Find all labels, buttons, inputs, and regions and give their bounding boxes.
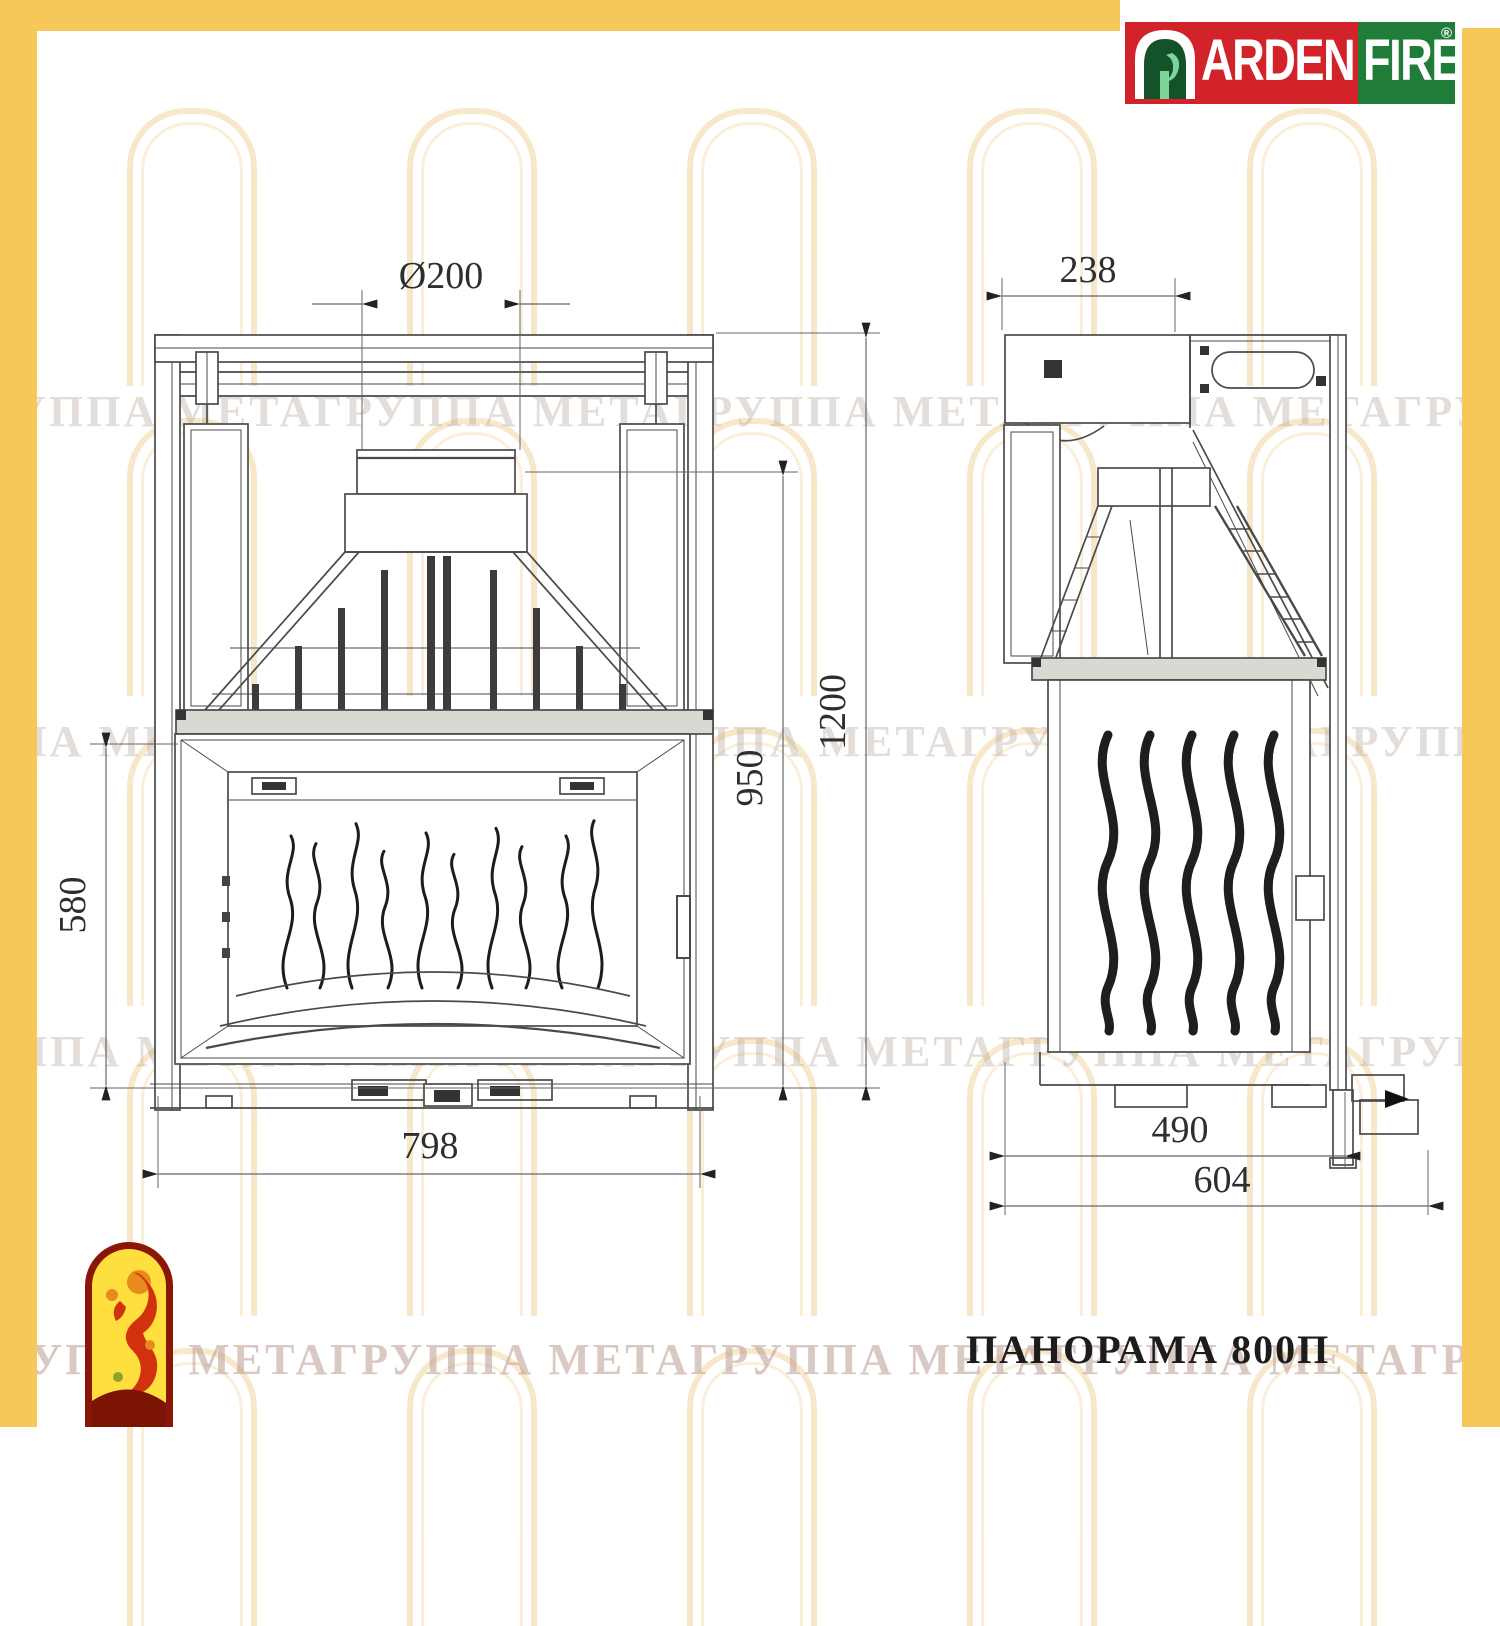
side-base	[1040, 1052, 1326, 1107]
dim-top-depth: 238	[1060, 249, 1117, 291]
brand-word-arden: ARDEN	[1201, 29, 1354, 93]
frame-strip-right	[1462, 28, 1500, 1427]
frame-strip-top	[0, 0, 1120, 31]
ardenfire-logo: ARDEN FIRE ®	[1125, 22, 1455, 104]
hood-slats	[252, 556, 626, 710]
hood	[205, 552, 667, 710]
mantel-band	[176, 710, 713, 734]
dim-firebox-height: 580	[52, 877, 94, 934]
registered-trademark: ®	[1441, 25, 1452, 42]
side-view-drawing	[1004, 335, 1418, 1168]
front-view-drawing	[150, 335, 714, 1110]
ardenfire-logo-red-panel: ARDEN	[1125, 22, 1358, 104]
dim-width: 798	[402, 1125, 459, 1167]
side-hood	[1040, 468, 1322, 660]
door-handle	[677, 896, 690, 958]
meta-arch-logo	[85, 1242, 173, 1427]
scanned-spec-sheet: { "brand": { "arden": "ARDEN", "fire": "…	[0, 0, 1500, 1427]
model-title: ПАНОРАМА 800П	[966, 1326, 1330, 1373]
dim-body-depth: 490	[1152, 1109, 1209, 1151]
dim-total-height: 1200	[812, 674, 854, 750]
flue-collar	[345, 450, 527, 552]
ardenfire-arch-icon	[1132, 27, 1198, 99]
dim-total-depth: 604	[1194, 1159, 1251, 1201]
fireplace-technical-drawing: Ø200 1200 950 580 798	[0, 0, 1500, 1427]
flame-figure-icon	[92, 1249, 166, 1427]
firebox-door	[175, 734, 690, 1064]
dim-flue-diameter: Ø200	[399, 255, 483, 297]
front-base	[150, 1080, 714, 1108]
frame-strip-left	[0, 0, 37, 1427]
dim-inner-height: 950	[729, 750, 771, 807]
ardenfire-logo-green-panel: FIRE ®	[1358, 22, 1455, 104]
